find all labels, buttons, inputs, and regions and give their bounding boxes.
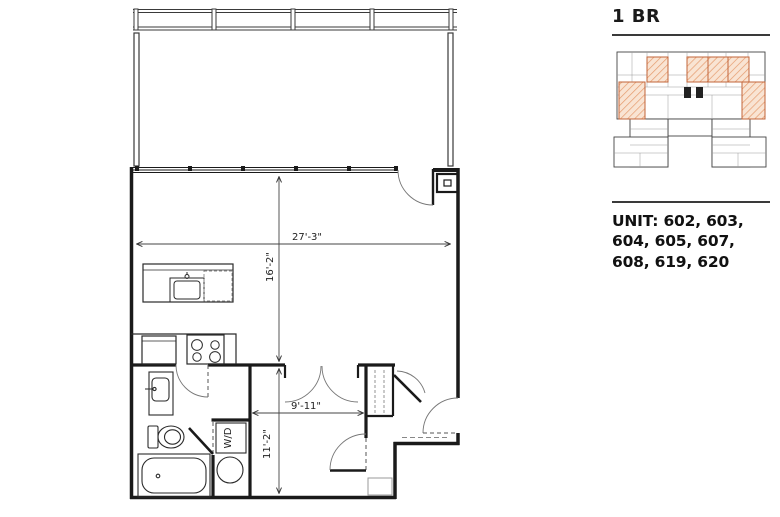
key-plan	[612, 49, 770, 171]
closets	[368, 370, 392, 495]
balcony-door	[398, 169, 433, 205]
range-stove	[187, 335, 224, 364]
highlight-unit	[619, 82, 645, 119]
floor-plan-drawing: W/D 27'-3" 16'-2" 11'-2" 9'-11"	[0, 0, 612, 517]
bathroom-door	[176, 365, 208, 397]
washer-drum	[217, 457, 243, 483]
balcony-side-wall-right	[448, 33, 453, 166]
highlight-unit	[687, 57, 709, 82]
dim-living-width: 27'-3"	[292, 232, 322, 243]
highlight-unit	[708, 57, 729, 82]
washer-dryer-label: W/D	[223, 427, 234, 448]
kitchen-sink	[170, 272, 204, 302]
dim-living-depth: 16'-2"	[265, 252, 276, 282]
bedroom-closet-cabinet	[368, 478, 392, 495]
kitchen	[131, 264, 236, 364]
kitchen-island	[143, 264, 233, 302]
plan-title: 1 BR	[612, 6, 772, 27]
bathtub	[138, 454, 210, 497]
unit-numbers: UNIT: 602, 603, 604, 605, 607, 608, 619,…	[612, 211, 768, 272]
dimensions: 27'-3" 16'-2" 11'-2" 9'-11"	[137, 177, 450, 493]
divider-bottom	[612, 201, 770, 203]
column-shaft	[437, 174, 458, 192]
balcony	[133, 9, 457, 166]
highlight-unit	[742, 82, 765, 119]
bedroom-french-doors	[285, 365, 358, 402]
doors	[176, 169, 458, 471]
highlight-unit	[647, 57, 668, 82]
balcony-railing	[133, 9, 457, 30]
entry-door	[402, 398, 458, 438]
wd-closet-door	[189, 422, 213, 454]
vanity-sink	[145, 372, 173, 415]
washer-dryer-closet: W/D	[216, 423, 246, 483]
balcony-side-wall-left	[134, 33, 139, 166]
bathroom	[138, 372, 210, 497]
exterior-walls	[130, 167, 460, 499]
info-panel: 1 BR	[612, 6, 772, 272]
dishwasher	[204, 271, 232, 301]
toilet	[148, 426, 184, 448]
floor-plan-sheet: { "panel": { "title": "1 BR", "units_lab…	[0, 0, 780, 517]
highlight-unit	[728, 57, 749, 82]
window-wall	[131, 166, 459, 173]
divider-top	[612, 34, 770, 36]
entry-closet-rod	[375, 370, 384, 414]
dim-bedroom-depth: 11'-2"	[262, 429, 273, 459]
bedroom-door	[330, 434, 366, 471]
refrigerator	[142, 336, 176, 364]
entry-closet-door	[394, 371, 425, 402]
unit-floor-plan: W/D 27'-3" 16'-2" 11'-2" 9'-11"	[0, 0, 612, 517]
dim-bedroom-width: 9'-11"	[291, 401, 321, 412]
